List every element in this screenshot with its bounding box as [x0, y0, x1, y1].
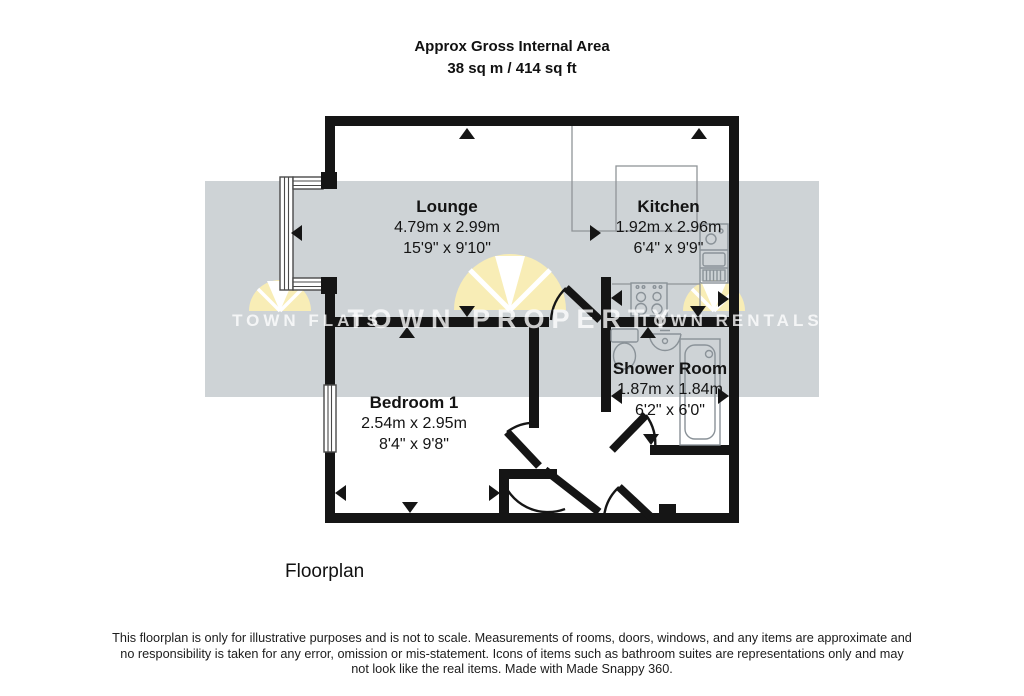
- bedroom1-metric: 2.54m x 2.95m: [328, 413, 500, 434]
- watermark-town-rentals: TOWN RENTALS: [639, 311, 822, 331]
- entrance-door-arc: [604, 487, 619, 517]
- kitchen-metric: 1.92m x 2.96m: [585, 217, 752, 238]
- bedroom1-name: Bedroom 1: [328, 392, 500, 413]
- wall-entrance-stub: [659, 504, 676, 520]
- bedroom-door-leaf: [507, 432, 539, 466]
- bedroom1-imperial: 8'4" x 9'8": [328, 434, 500, 455]
- page-title: Approx Gross Internal Area 38 sq m / 414…: [0, 36, 1024, 80]
- kitchen-label: Kitchen 1.92m x 2.96m 6'4" x 9'9": [585, 196, 752, 259]
- title-line1: Approx Gross Internal Area: [0, 36, 1024, 58]
- lounge-label: Lounge 4.79m x 2.99m 15'9" x 9'10": [362, 196, 532, 259]
- lounge-imperial: 15'9" x 9'10": [362, 238, 532, 259]
- shower-room-label: Shower Room 1.87m x 1.84m 6'2" x 6'0": [585, 358, 755, 421]
- shower-room-metric: 1.87m x 1.84m: [585, 379, 755, 400]
- title-line2: 38 sq m / 414 sq ft: [0, 58, 1024, 80]
- floorplan-page: TOWN FLATS TOWN PROPERTY TOWN RENTALS Ap…: [0, 0, 1024, 696]
- disclaimer-text: This floorplan is only for illustrative …: [112, 631, 912, 678]
- shower-room-name: Shower Room: [585, 358, 755, 379]
- bedroom1-label: Bedroom 1 2.54m x 2.95m 8'4" x 9'8": [328, 392, 500, 455]
- kitchen-imperial: 6'4" x 9'9": [585, 238, 752, 259]
- floorplan-drawing: [0, 0, 1024, 696]
- lounge-name: Lounge: [362, 196, 532, 217]
- floorplan-caption: Floorplan: [285, 561, 364, 583]
- kitchen-name: Kitchen: [585, 196, 752, 217]
- shower-room-imperial: 6'2" x 6'0": [585, 400, 755, 421]
- hall-door-leaf: [545, 470, 599, 512]
- lounge-metric: 4.79m x 2.99m: [362, 217, 532, 238]
- watermark-town-property: TOWN PROPERTY: [347, 304, 676, 335]
